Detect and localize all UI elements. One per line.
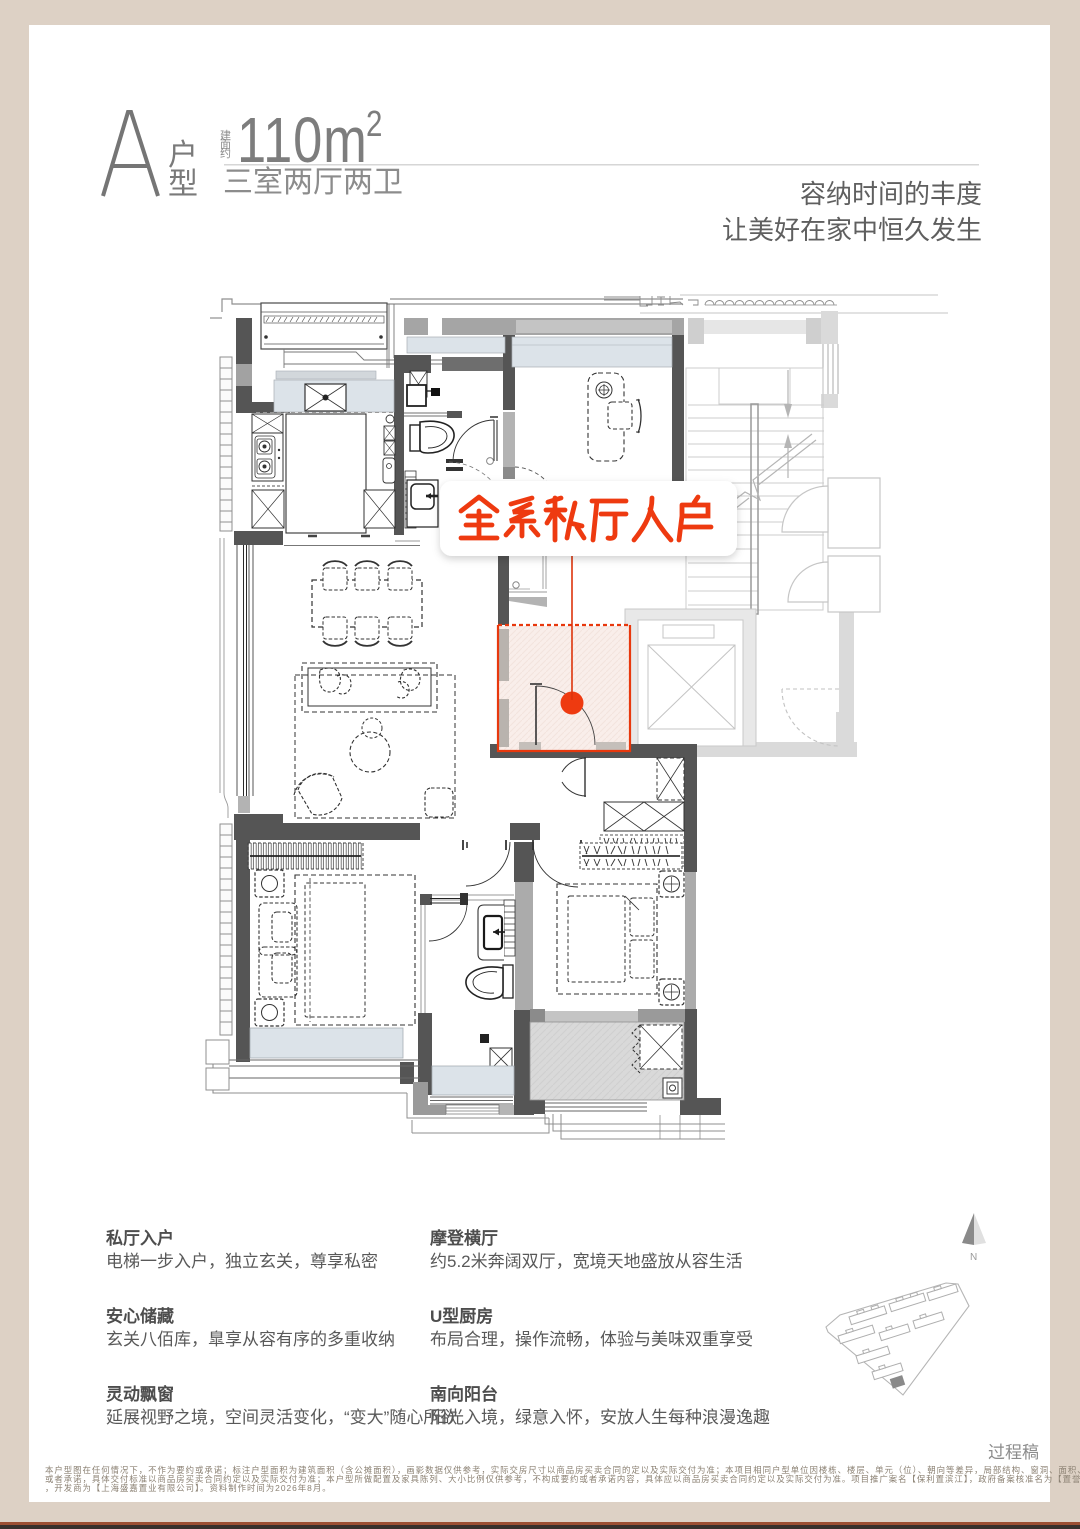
- svg-text:容纳时间的丰度: 容纳时间的丰度: [800, 179, 982, 209]
- svg-text:U型厨房: U型厨房: [430, 1306, 493, 1326]
- svg-text:过程稿: 过程稿: [988, 1443, 1039, 1462]
- svg-text:电梯一步入户，独立玄关，尊享私密: 电梯一步入户，独立玄关，尊享私密: [106, 1252, 378, 1271]
- svg-text:摩登横厅: 摩登横厅: [430, 1228, 498, 1248]
- svg-text:约: 约: [220, 147, 231, 160]
- svg-text:延展视野之境，空间灵活变化，“变大”随心所欲: 延展视野之境，空间灵活变化，“变大”随心所欲: [106, 1408, 457, 1427]
- svg-text:三室两厅两卫: 三室两厅两卫: [223, 166, 403, 199]
- svg-text:安心储藏: 安心储藏: [106, 1306, 174, 1326]
- svg-text:让美好在家中恒久发生: 让美好在家中恒久发生: [722, 215, 982, 245]
- svg-text:N: N: [970, 1252, 977, 1263]
- svg-text:布局合理，操作流畅，体验与美味双重享受: 布局合理，操作流畅，体验与美味双重享受: [430, 1330, 753, 1349]
- svg-text:南向阳台: 南向阳台: [430, 1384, 498, 1404]
- svg-text:，开发商为【上海盛嘉置业有限公司】。资料制作时间为2026年: ，开发商为【上海盛嘉置业有限公司】。资料制作时间为2026年8月。: [45, 1483, 332, 1493]
- svg-text:型: 型: [168, 168, 198, 201]
- svg-text:灵动飘窗: 灵动飘窗: [106, 1384, 174, 1404]
- svg-text:阳光入境，绿意入怀，安放人生每种浪漫逸趣: 阳光入境，绿意入怀，安放人生每种浪漫逸趣: [430, 1408, 770, 1427]
- svg-text:私厅入户: 私厅入户: [106, 1228, 174, 1248]
- svg-text:2: 2: [366, 103, 382, 143]
- svg-text:约5.2米奔阔双厅，宽境天地盛放从容生活: 约5.2米奔阔双厅，宽境天地盛放从容生活: [430, 1252, 743, 1271]
- svg-text:玄关八佰库，臯享从容有序的多重收纳: 玄关八佰库，臯享从容有序的多重收纳: [106, 1330, 395, 1349]
